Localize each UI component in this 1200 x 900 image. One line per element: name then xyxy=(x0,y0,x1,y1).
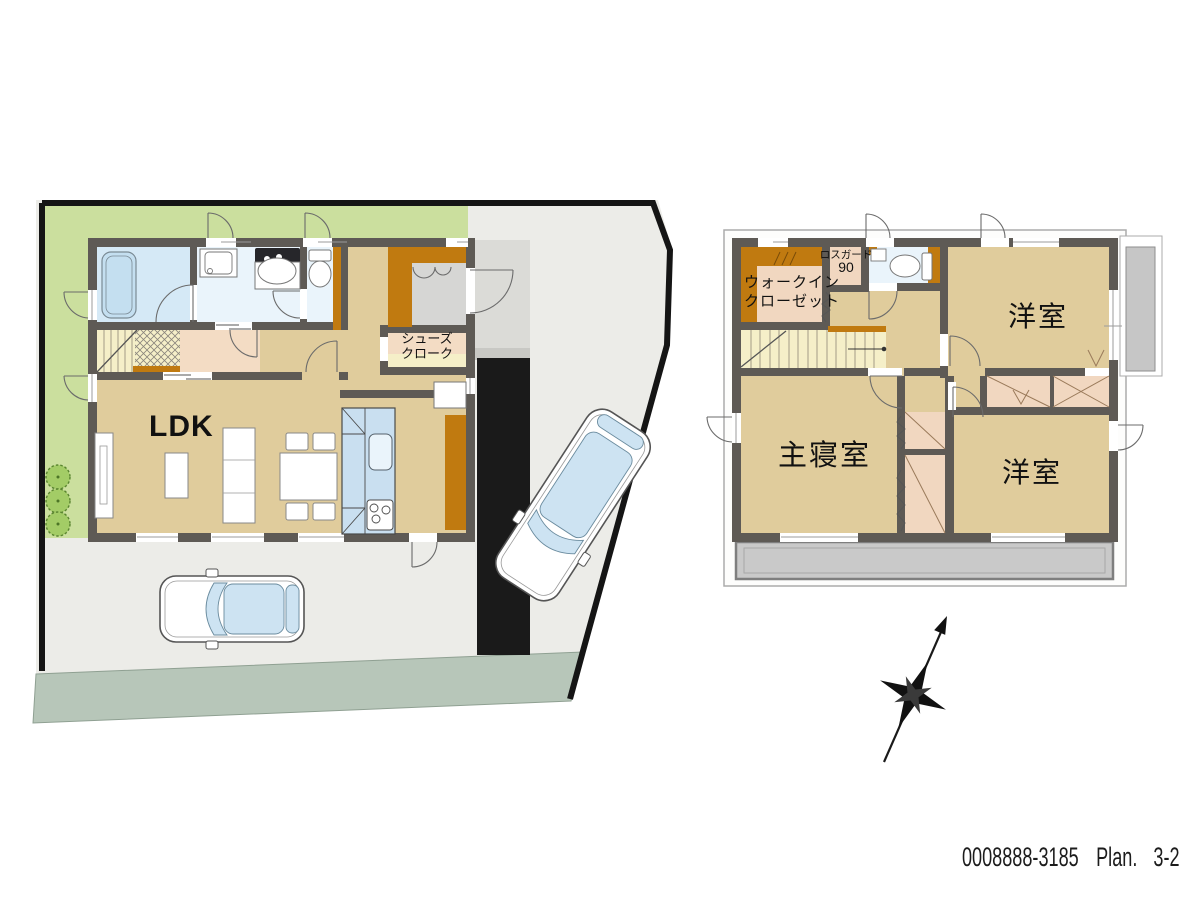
plan-label: Plan. xyxy=(1096,842,1137,872)
label-wic-line2: クローゼット xyxy=(733,292,851,311)
toilet1f-bowl xyxy=(309,261,331,287)
bathtub xyxy=(102,252,136,318)
vanity-sink xyxy=(258,258,296,284)
approach-strip xyxy=(477,358,530,655)
compass-star-secondary xyxy=(894,676,931,713)
plan-code: 0008888-3185 xyxy=(962,842,1079,872)
sofa xyxy=(223,428,255,523)
kitchen-sink xyxy=(369,434,392,470)
label-shoes-cloak: シューズ クローク xyxy=(383,331,471,361)
side-table xyxy=(165,453,188,498)
entrance-floor xyxy=(412,263,466,327)
label-lossguard: ロスガード 90 xyxy=(818,249,874,273)
toilet1f-tank xyxy=(309,250,331,261)
stairs1f-hatch xyxy=(135,330,180,367)
plan-value: 3-2 xyxy=(1153,842,1179,872)
label-walk-in-closet: ウォークイン クローゼット xyxy=(733,273,851,311)
floor-plan-1f xyxy=(64,213,513,567)
toilet2f-bowl xyxy=(890,255,920,277)
label-wic-line1: ウォークイン xyxy=(733,273,851,292)
floorplan-graphic xyxy=(0,0,1200,900)
car-bottom xyxy=(160,569,304,649)
label-shoes-cloak-line2: クローク xyxy=(383,346,471,361)
porch xyxy=(467,240,530,348)
floorplan-page: LDK シューズ クローク ウォークイン クローゼット ロスガード 90 主寝室… xyxy=(0,0,1200,900)
fridge xyxy=(434,382,466,408)
side-roof xyxy=(1126,247,1155,371)
toilet2f-tank xyxy=(922,253,932,280)
hall-peach xyxy=(180,330,260,372)
floor-plan-2f xyxy=(707,214,1162,586)
compass-arrowhead xyxy=(934,616,947,635)
dining-table xyxy=(280,453,337,500)
compass xyxy=(880,616,947,762)
label-ldk: LDK xyxy=(149,410,214,444)
label-western-room-bottom: 洋室 xyxy=(990,451,1074,491)
label-shoes-cloak-line1: シューズ xyxy=(383,331,471,346)
washer xyxy=(205,252,232,274)
label-master-bedroom: 主寝室 xyxy=(757,432,892,474)
plan-number: 0008888-3185Plan.3-2 xyxy=(962,842,1180,873)
stove xyxy=(367,500,393,530)
label-western-room-top: 洋室 xyxy=(996,295,1080,335)
label-lossguard-line2: 90 xyxy=(818,261,874,273)
